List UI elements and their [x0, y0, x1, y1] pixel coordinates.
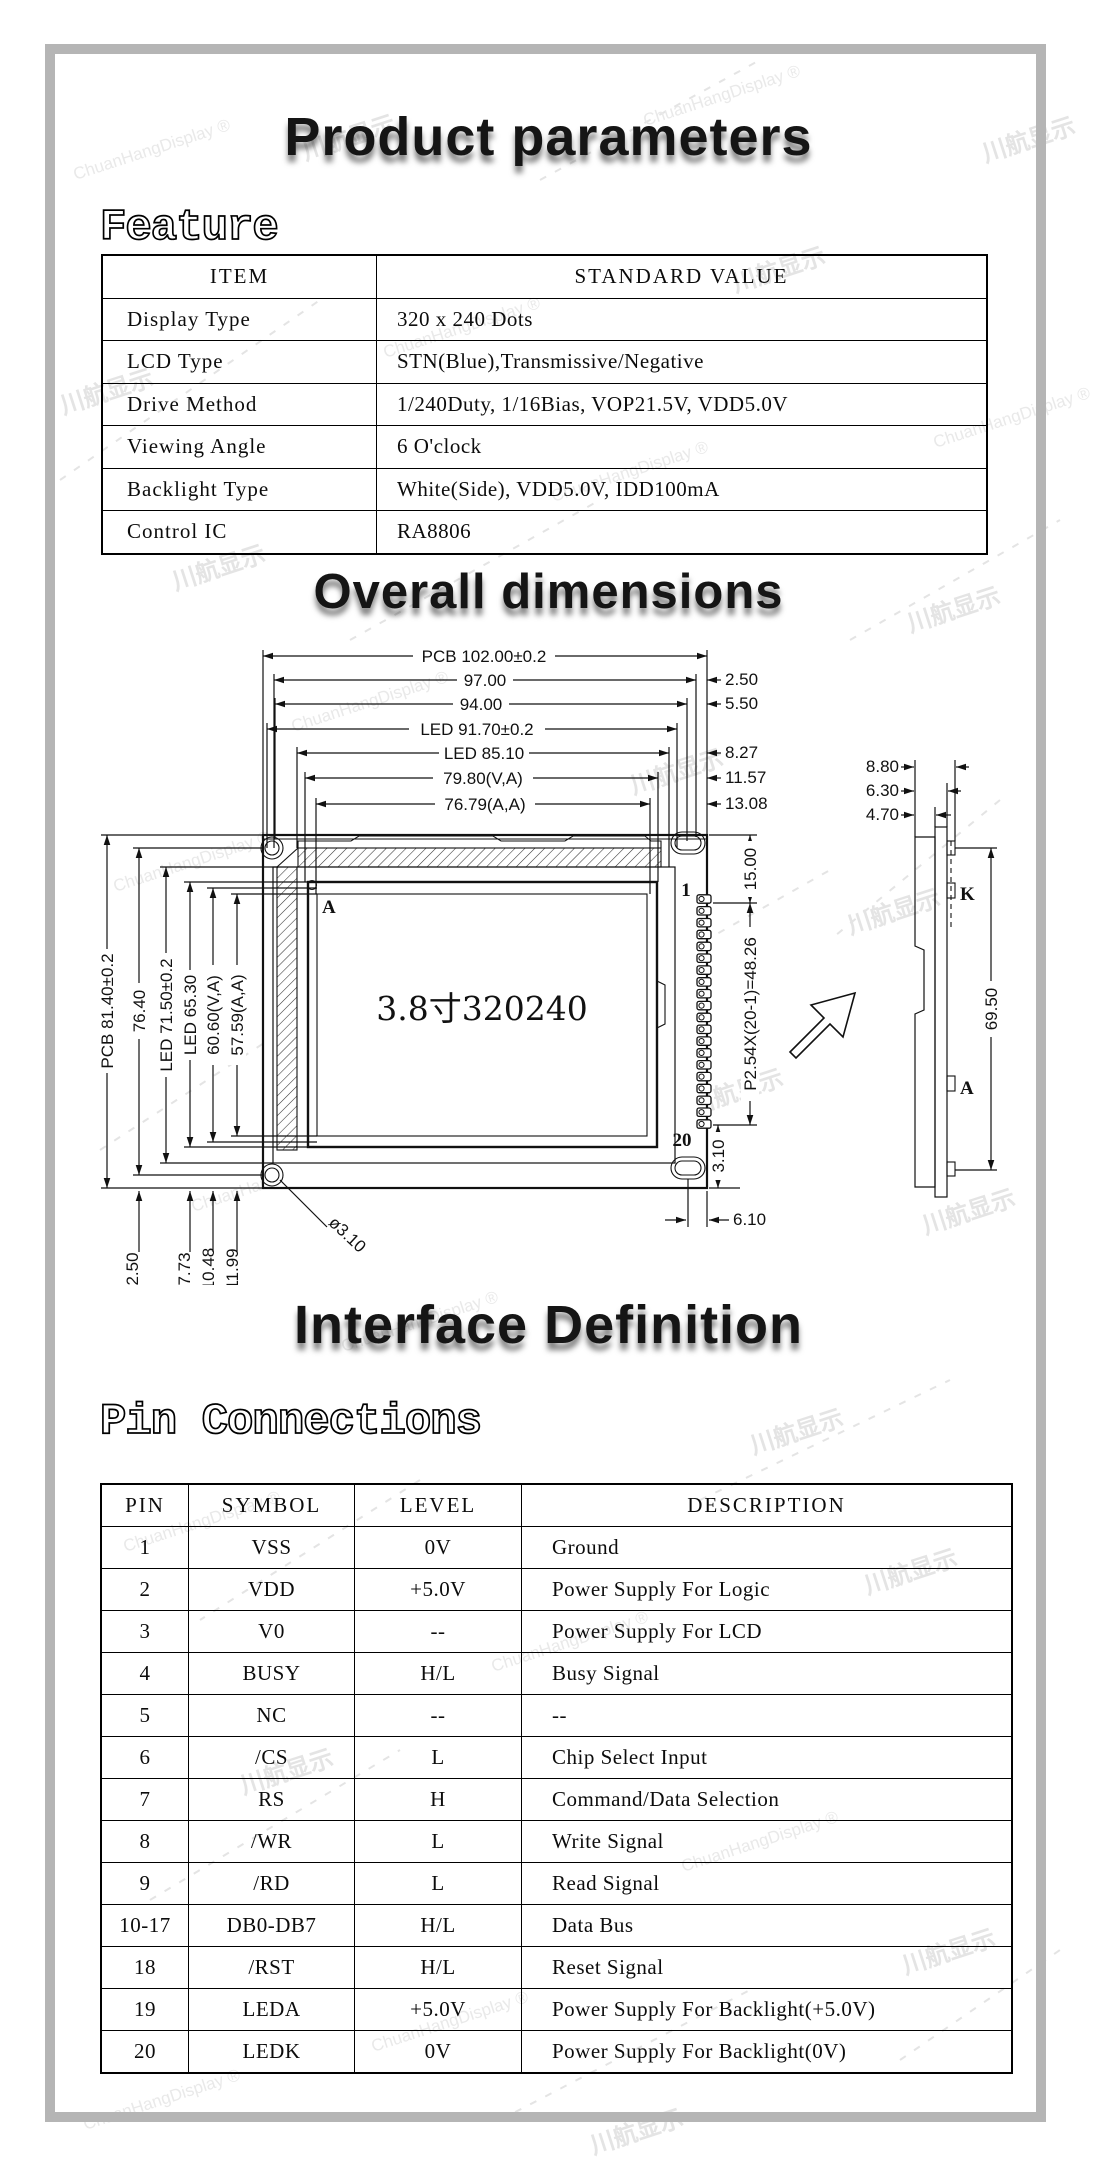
hatch-strip-left [277, 867, 297, 1150]
table-cell: 7 [101, 1779, 189, 1821]
table-cell: 4 [101, 1653, 189, 1695]
table-cell: White(Side), VDD5.0V, IDD100mA [377, 468, 988, 511]
table-cell: L [355, 1737, 522, 1779]
pin-dimensions: 15.00 P2.54X(20-1)=48.26 3.10 [709, 835, 760, 1188]
page-title: Product parameters [0, 110, 1097, 164]
table-row: 4BUSYH/LBusy Signal [101, 1653, 1012, 1695]
dim-led-8510: LED 85.10 [444, 744, 524, 763]
pin-pad-hole [699, 979, 704, 984]
table-cell: Power Supply For LCD [522, 1611, 1013, 1653]
table-cell: 6 O'clock [377, 426, 988, 469]
pin-1-label: 1 [681, 880, 691, 901]
dim-6060: 60.60(V,A) [204, 975, 223, 1055]
table-cell: H [355, 1779, 522, 1821]
feature-table: ITEMSTANDARD VALUEDisplay Type320 x 240 … [101, 254, 988, 555]
offset-550: 5.50 [725, 694, 758, 713]
table-cell: +5.0V [355, 1569, 522, 1611]
table-cell: NC [189, 1695, 355, 1737]
dim-7980: 79.80(V,A) [443, 769, 523, 788]
table-cell: Power Supply For Backlight(0V) [522, 2031, 1013, 2074]
table-cell: Backlight Type [102, 468, 377, 511]
dim-pcb-width: PCB 102.00±0.2 [422, 647, 547, 666]
side-pcb-bar [935, 827, 947, 1197]
pin-pad-hole [699, 932, 704, 937]
side-pin-a-label: A [960, 1078, 974, 1099]
table-cell: Write Signal [522, 1821, 1013, 1863]
dim-6950: 69.50 [982, 988, 1001, 1031]
table-row: Backlight TypeWhite(Side), VDD5.0V, IDD1… [102, 468, 987, 511]
table-cell: Command/Data Selection [522, 1779, 1013, 1821]
table-cell: VDD [189, 1569, 355, 1611]
side-frame-profile [915, 837, 935, 1187]
dim-led-9170: LED 91.70±0.2 [420, 720, 533, 739]
table-cell: -- [355, 1611, 522, 1653]
pin-pad-hole [699, 1050, 704, 1055]
table-row: 2VDD+5.0VPower Supply For Logic [101, 1569, 1012, 1611]
table-header-row: ITEMSTANDARD VALUE [102, 255, 987, 298]
table-cell: 1/240Duty, 1/16Bias, VOP21.5V, VDD5.0V [377, 383, 988, 426]
table-cell: 8 [101, 1821, 189, 1863]
pin-pad-hole [699, 944, 704, 949]
dim-1500: 15.00 [741, 848, 760, 891]
dim-610: 6.10 [733, 1210, 766, 1229]
dim-bottom-1048: 10.48 [199, 1248, 218, 1285]
dim-bottom-1199: 11.99 [223, 1248, 242, 1285]
table-cell: STN(Blue),Transmissive/Negative [377, 341, 988, 384]
table-cell: Chip Select Input [522, 1737, 1013, 1779]
section-heading-pin-connections: Pin Connections [100, 1400, 481, 1444]
table-cell: VSS [189, 1527, 355, 1569]
table-row: 20LEDK0VPower Supply For Backlight(0V) [101, 2031, 1012, 2074]
dim-7679: 76.79(A,A) [444, 795, 525, 814]
table-row: 3V0--Power Supply For LCD [101, 1611, 1012, 1653]
pin-pad-hole [699, 1015, 704, 1020]
dim-880: 8.80 [866, 757, 899, 776]
pin-pad-hole [699, 1098, 704, 1103]
dim-bottom-773: 7.73 [175, 1252, 194, 1285]
pin-pad-hole [699, 1086, 704, 1091]
pin-pad-hole [699, 1062, 704, 1067]
front-view: A 3.8寸320240 1 20 [261, 832, 711, 1188]
table-cell: 20 [101, 2031, 189, 2074]
dim-97: 97.00 [464, 671, 507, 690]
table-cell: Ground [522, 1527, 1013, 1569]
table-row: Drive Method1/240Duty, 1/16Bias, VOP21.5… [102, 383, 987, 426]
dim-pin-pitch: P2.54X(20-1)=48.26 [741, 937, 760, 1091]
table-cell: Reset Signal [522, 1947, 1013, 1989]
hatch-strip-top [298, 848, 661, 867]
table-cell: 19 [101, 1989, 189, 2031]
dim-630: 6.30 [866, 781, 899, 800]
table-cell: 18 [101, 1947, 189, 1989]
table-row: Display Type320 x 240 Dots [102, 298, 987, 341]
table-cell: 9 [101, 1863, 189, 1905]
table-cell: Busy Signal [522, 1653, 1013, 1695]
table-cell: H/L [355, 1947, 522, 1989]
dim-7640: 76.40 [130, 990, 149, 1033]
table-cell: Viewing Angle [102, 426, 377, 469]
pin-pad-hole [699, 1074, 704, 1079]
table-cell: 320 x 240 Dots [377, 298, 988, 341]
pin-pad-hole [699, 908, 704, 913]
table-cell: 6 [101, 1737, 189, 1779]
side-tab-bottom [947, 1162, 955, 1176]
table-cell: 2 [101, 1569, 189, 1611]
datasheet-page: { "page": { "title1": "Product parameter… [0, 0, 1097, 2179]
table-cell: 0V [355, 1527, 522, 1569]
table-row: 6/CSLChip Select Input [101, 1737, 1012, 1779]
corner-marker-label: A [322, 897, 336, 918]
table-row: 9/RDLRead Signal [101, 1863, 1012, 1905]
pin-pad-hole [699, 1110, 704, 1115]
table-cell: Drive Method [102, 383, 377, 426]
table-cell: H/L [355, 1905, 522, 1947]
pin-pad-hole [699, 1003, 704, 1008]
table-cell: Power Supply For Backlight(+5.0V) [522, 1989, 1013, 2031]
pin-pad-hole [699, 1027, 704, 1032]
pin-pad-hole [699, 1121, 704, 1126]
pin-20-label: 20 [673, 1130, 692, 1151]
dim-470: 4.70 [866, 805, 899, 824]
table-cell: -- [355, 1695, 522, 1737]
side-pin-k-label: K [960, 884, 975, 905]
column-header: LEVEL [355, 1484, 522, 1527]
table-cell: 0V [355, 2031, 522, 2074]
table-cell: RS [189, 1779, 355, 1821]
table-row: 19LEDA+5.0VPower Supply For Backlight(+5… [101, 1989, 1012, 2031]
section-title-interface-definition: Interface Definition [0, 1298, 1097, 1352]
table-cell: /RST [189, 1947, 355, 1989]
pin-pad-hole [699, 968, 704, 973]
table-row: 10-17DB0-DB7H/LData Bus [101, 1905, 1012, 1947]
table-cell: BUSY [189, 1653, 355, 1695]
offset-1157: 11.57 [725, 768, 766, 787]
offset-1308: 13.08 [725, 794, 768, 813]
table-row: 8/WRLWrite Signal [101, 1821, 1012, 1863]
table-row: 1VSS0VGround [101, 1527, 1012, 1569]
table-header-row: PINSYMBOLLEVELDESCRIPTION [101, 1484, 1012, 1527]
pin-pad-hole [699, 991, 704, 996]
column-header: ITEM [102, 255, 377, 298]
offset-250: 2.50 [725, 670, 758, 689]
bottom-dimensions: 2.50 7.73 10.48 11.99 ø3.10 6.10 [123, 1179, 766, 1285]
column-header: STANDARD VALUE [377, 255, 988, 298]
table-cell: LEDK [189, 2031, 355, 2074]
column-header: DESCRIPTION [522, 1484, 1013, 1527]
table-row: 5NC---- [101, 1695, 1012, 1737]
table-cell: 3 [101, 1611, 189, 1653]
direction-arrow [790, 993, 855, 1058]
dim-94: 94.00 [460, 695, 503, 714]
column-header: SYMBOL [189, 1484, 355, 1527]
table-cell: 1 [101, 1527, 189, 1569]
pin-pad-hole [699, 920, 704, 925]
table-cell: LEDA [189, 1989, 355, 2031]
pin-pad-hole [699, 896, 704, 901]
table-row: Viewing Angle6 O'clock [102, 426, 987, 469]
table-cell: Control IC [102, 511, 377, 554]
table-cell: DB0-DB7 [189, 1905, 355, 1947]
dim-pcb-height: PCB 81.40±0.2 [98, 953, 117, 1068]
table-cell: L [355, 1863, 522, 1905]
side-view: K A 69.50 8.80 6.30 4.70 [790, 757, 1001, 1197]
dim-led-6530: LED 65.30 [181, 975, 200, 1055]
table-row: Control ICRA8806 [102, 511, 987, 554]
dim-bottom-250: 2.50 [123, 1252, 142, 1285]
table-cell: L [355, 1821, 522, 1863]
pin-pad-hole [699, 956, 704, 961]
dim-310: 3.10 [709, 1139, 728, 1172]
dimension-drawing: A 3.8寸320240 1 20 PCB 102.00±0.2 97.00 9… [45, 615, 1055, 1285]
table-cell: 10-17 [101, 1905, 189, 1947]
section-heading-feature: Feature [100, 206, 278, 250]
side-pin-a [947, 1076, 955, 1091]
table-cell: Display Type [102, 298, 377, 341]
column-header: PIN [101, 1484, 189, 1527]
table-cell: RA8806 [377, 511, 988, 554]
table-cell: /CS [189, 1737, 355, 1779]
table-cell: 5 [101, 1695, 189, 1737]
table-cell: /WR [189, 1821, 355, 1863]
table-cell: /RD [189, 1863, 355, 1905]
pin-connections-table: PINSYMBOLLEVELDESCRIPTION1VSS0VGround2VD… [100, 1483, 1013, 2074]
dim-hole-diameter: ø3.10 [325, 1213, 370, 1257]
table-cell: -- [522, 1695, 1013, 1737]
table-cell: V0 [189, 1611, 355, 1653]
screen-size-label: 3.8寸320240 [376, 989, 587, 1028]
table-cell: LCD Type [102, 341, 377, 384]
table-cell: Data Bus [522, 1905, 1013, 1947]
table-cell: Power Supply For Logic [522, 1569, 1013, 1611]
table-row: LCD TypeSTN(Blue),Transmissive/Negative [102, 341, 987, 384]
pin-pad-hole [699, 1039, 704, 1044]
offset-827: 8.27 [725, 743, 758, 762]
table-row: 18/RSTH/LReset Signal [101, 1947, 1012, 1989]
table-cell: Read Signal [522, 1863, 1013, 1905]
dim-led-7150: LED 71.50±0.2 [157, 958, 176, 1071]
table-cell: +5.0V [355, 1989, 522, 2031]
section-title-overall-dimensions: Overall dimensions [0, 568, 1097, 617]
table-row: 7RSHCommand/Data Selection [101, 1779, 1012, 1821]
table-cell: H/L [355, 1653, 522, 1695]
dim-5759: 57.59(A,A) [228, 974, 247, 1055]
